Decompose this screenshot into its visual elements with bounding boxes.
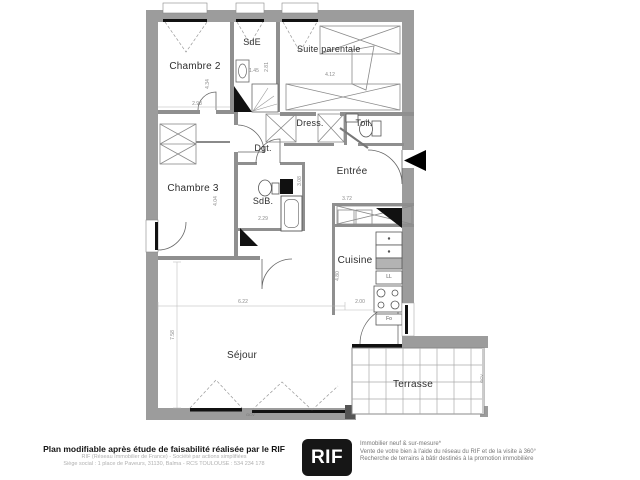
dim-chambre3-height: 4.04 [213, 196, 219, 206]
rif-logo: RIF [302, 439, 352, 476]
dim-sejour-width: 6.22 [238, 299, 248, 305]
appliance-label-washing-machine: LL [386, 274, 392, 280]
footer-services-block: Immobilier neuf & sur-mesure* Vente de v… [360, 441, 536, 464]
right-facade-window [402, 303, 414, 336]
room-label-terrasse: Terrasse [393, 379, 433, 390]
room-label-sdb: SdB. [253, 196, 273, 206]
dim-sejour-height: 7.58 [170, 330, 176, 340]
dim-sde-height: 2.81 [264, 62, 270, 72]
footer-company-line2: Siège social : 1 place de Paveurs, 31130… [14, 461, 314, 468]
room-label-sde: SdE [243, 37, 261, 47]
room-label-cuisine: Cuisine [338, 255, 373, 266]
footer-service-1: Immobilier neuf & sur-mesure* [360, 441, 536, 449]
footer: Plan modifiable après étude de faisabili… [0, 432, 640, 480]
entrance-arrow-icon [404, 150, 426, 171]
dim-sde-width: 1.45 [249, 68, 259, 74]
facade-windows-top [163, 3, 318, 52]
window-code-terrace: GCV [479, 374, 484, 383]
footer-disclaimer: Plan modifiable après étude de faisabili… [14, 444, 314, 454]
sdb-fixtures [240, 179, 302, 246]
room-label-dgt: Dgt. [254, 143, 271, 153]
dim-chambre2-height: 4.34 [205, 79, 211, 89]
dim-sdb-height: 3.08 [297, 176, 303, 186]
footer-service-3: Recherche de terrains à bâtir destinés à… [360, 456, 536, 464]
footer-service-2: Vente de votre bien à l'aide du réseau d… [360, 449, 536, 457]
dim-closet-width: 3.72 [342, 196, 352, 202]
room-label-sejour: Séjour [227, 350, 257, 361]
room-label-entree: Entrée [337, 166, 368, 177]
floor-plan-drawing [0, 0, 640, 432]
room-label-toil: Toil. [355, 118, 372, 128]
shaft-triangle-sde [234, 86, 252, 112]
room-label-chambre3: Chambre 3 [167, 183, 218, 194]
window-code-bay: GCV [246, 412, 255, 417]
dim-suite-width: 4.12 [325, 72, 335, 78]
room-label-dress: Dress. [296, 118, 323, 128]
dim-cuisine-height: 4.80 [335, 271, 341, 281]
dim-sdb-width: 2.29 [258, 216, 268, 222]
dim-chambre2-width: 2.98 [192, 101, 202, 107]
room-label-suite-parentale: Suite parentale [297, 44, 357, 55]
left-facade-door [146, 220, 158, 252]
footer-left-block: Plan modifiable après étude de faisabili… [14, 444, 314, 467]
floor-plan-page: Chambre 2 SdE Suite parentale Dress. Toi… [0, 0, 640, 480]
dim-cuisine-width: 2.00 [355, 299, 365, 305]
room-label-chambre2: Chambre 2 [169, 61, 220, 72]
appliance-label-oven: Fo [386, 316, 392, 322]
